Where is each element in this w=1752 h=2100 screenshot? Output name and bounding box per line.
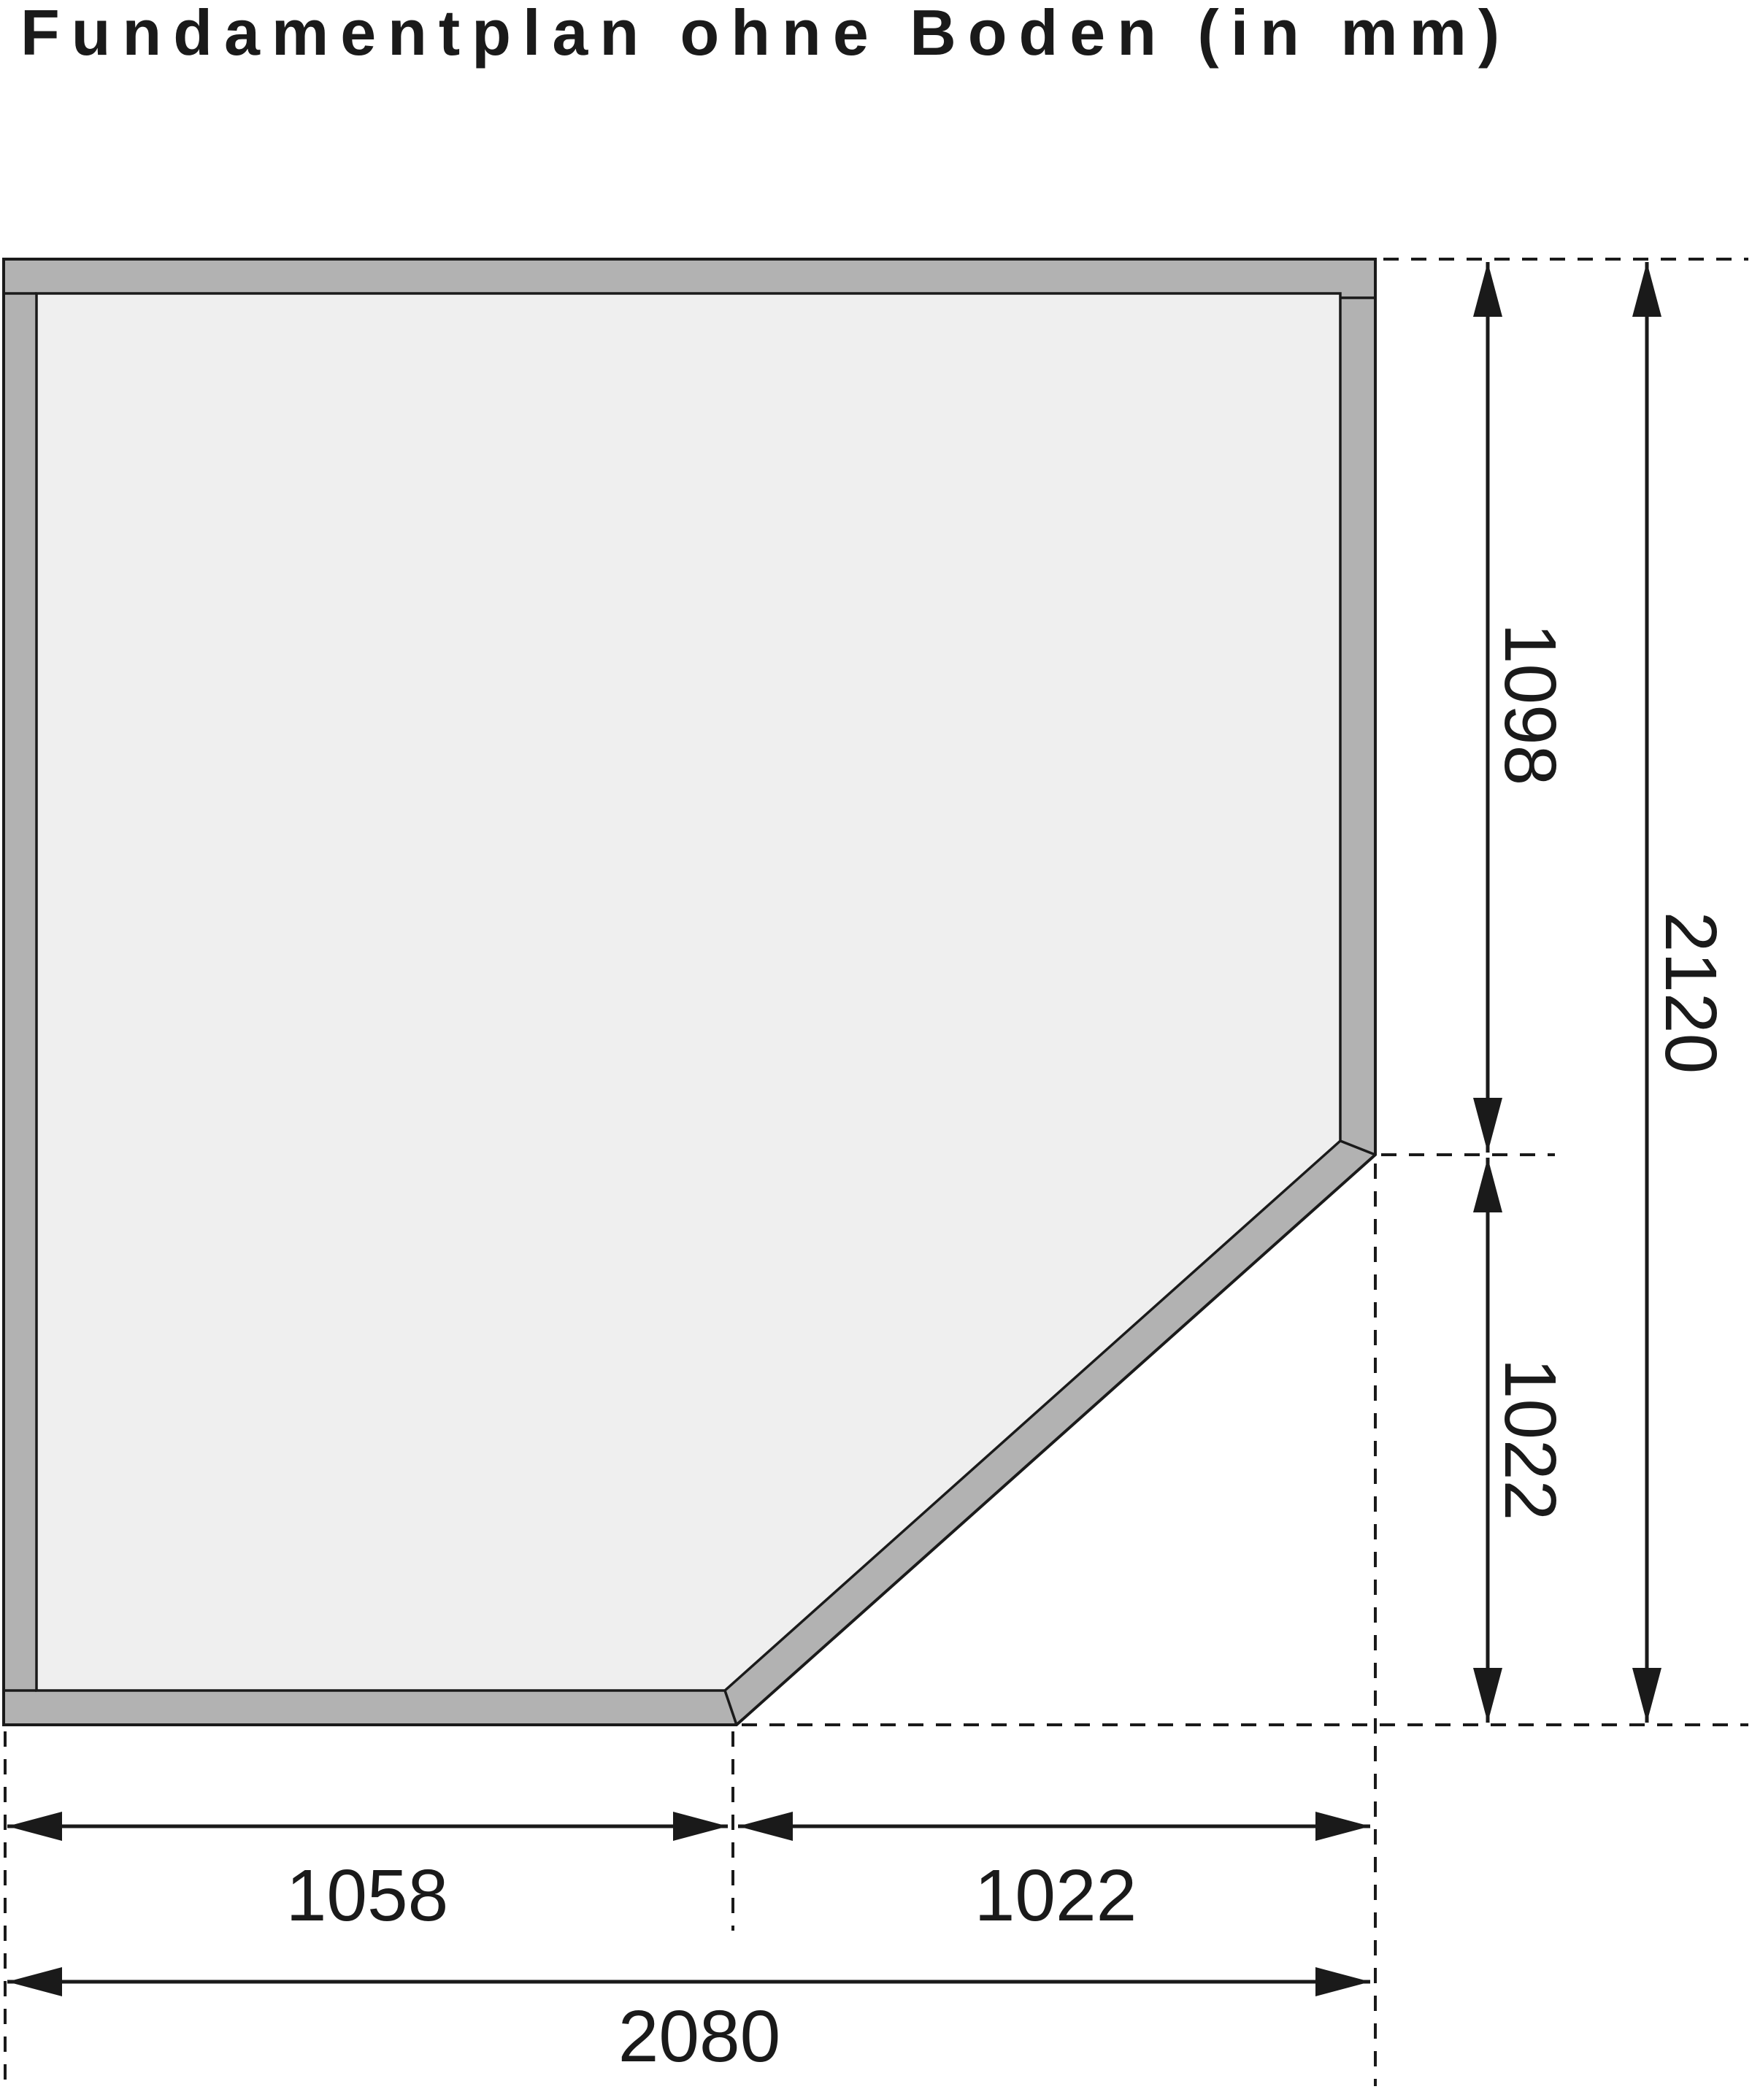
arrowhead-down-icon [1473, 1668, 1502, 1723]
arrowhead-right-icon [1315, 1812, 1370, 1841]
dimension-label-bottom-total: 2080 [618, 1996, 780, 2077]
arrowhead-down-icon [1473, 1098, 1502, 1153]
arrowhead-left-icon [7, 1812, 62, 1841]
arrowhead-left-icon [7, 1967, 62, 1996]
arrowhead-down-icon [1632, 1668, 1661, 1723]
arrowhead-up-icon [1473, 262, 1502, 317]
dimension-label-right-lower: 1022 [1489, 1358, 1571, 1520]
plan-interior-area [36, 293, 1340, 1691]
arrowhead-up-icon [1632, 262, 1661, 317]
arrowhead-right-icon [1315, 1967, 1370, 1996]
foundation-plan-drawing: Fundamentplan ohne Boden (in mm) 1098 10… [0, 0, 1752, 2100]
page-title: Fundamentplan ohne Boden (in mm) [20, 0, 1511, 69]
arrowhead-up-icon [1473, 1158, 1502, 1212]
dimension-label-right-upper: 1098 [1489, 623, 1571, 785]
dimension-label-bottom-left: 1058 [286, 1855, 448, 1936]
arrowhead-right-icon [673, 1812, 728, 1841]
dimension-label-bottom-right: 1022 [975, 1855, 1137, 1936]
arrowhead-left-icon [738, 1812, 793, 1841]
foundation-plan-page: Fundamentplan ohne Boden (in mm) 1098 10… [0, 0, 1752, 2100]
dimension-label-right-total: 2120 [1650, 912, 1732, 1074]
